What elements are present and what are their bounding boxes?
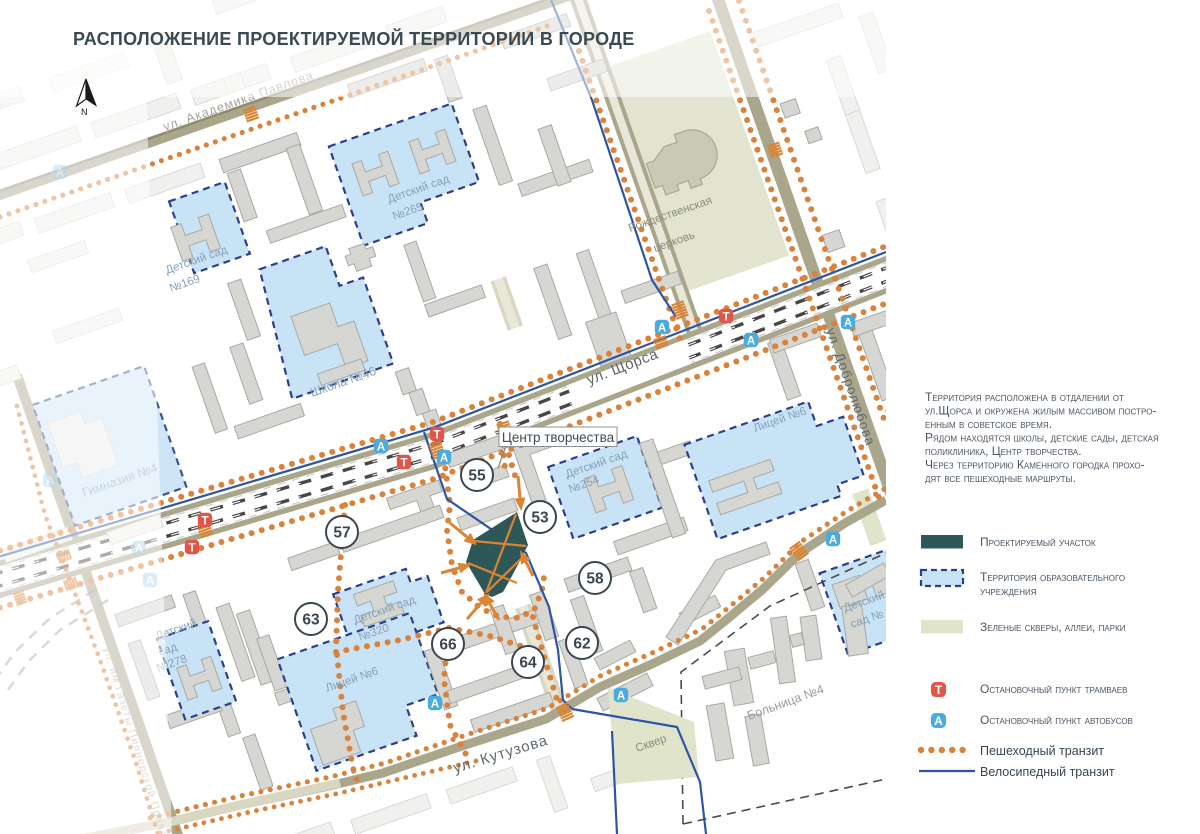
svg-text:енным в советское время.: енным в советское время. (925, 417, 1052, 431)
svg-text:дят все пешеходные маршруты.: дят все пешеходные маршруты. (925, 471, 1076, 485)
svg-text:A: A (440, 452, 448, 464)
svg-text:A: A (431, 698, 439, 710)
svg-text:A: A (829, 534, 837, 546)
svg-text:A: A (658, 322, 666, 334)
svg-text:58: 58 (586, 571, 604, 588)
svg-text:Больница №4: Больница №4 (745, 682, 825, 723)
svg-text:Проектируемый участок: Проектируемый участок (980, 535, 1096, 549)
svg-text:A: A (377, 441, 385, 453)
svg-text:T: T (201, 515, 208, 527)
svg-text:Остановочный пункт трамваев: Остановочный пункт трамваев (980, 682, 1127, 696)
svg-text:T: T (722, 311, 729, 323)
svg-text:Через территорию Каменного гор: Через территорию Каменного городка прохо… (925, 458, 1145, 472)
svg-text:T: T (188, 542, 195, 554)
svg-text:Территория расположена в отдал: Территория расположена в отдалении от (925, 390, 1124, 404)
svg-text:A: A (844, 317, 852, 329)
svg-text:T: T (935, 683, 943, 697)
svg-text:63: 63 (302, 612, 320, 629)
svg-text:62: 62 (573, 636, 590, 653)
svg-text:A: A (934, 714, 943, 728)
svg-text:ул.Щорса и окружена жилым масс: ул.Щорса и окружена жилым массивом постр… (925, 404, 1156, 418)
svg-text:A: A (747, 335, 755, 347)
svg-text:Центр творчества: Центр творчества (502, 430, 615, 445)
svg-text:№169: №169 (168, 273, 202, 295)
svg-text:53: 53 (531, 510, 549, 527)
svg-text:Велосипедный транзит: Велосипедный транзит (980, 765, 1115, 779)
svg-text:66: 66 (439, 637, 457, 654)
svg-text:поликлиника, Центр творчества.: поликлиника, Центр творчества. (925, 444, 1082, 458)
svg-text:Пешеходный транзит: Пешеходный транзит (980, 744, 1104, 758)
svg-text:учреждения: учреждения (980, 584, 1037, 598)
svg-text:A: A (617, 690, 625, 702)
svg-text:Территория образовательного: Территория образовательного (980, 570, 1125, 584)
svg-text:57: 57 (333, 525, 350, 542)
svg-text:РАСПОЛОЖЕНИЕ ПРОЕКТИРУЕМОЙ ТЕР: РАСПОЛОЖЕНИЕ ПРОЕКТИРУЕМОЙ ТЕРРИТОРИИ В … (73, 28, 635, 49)
svg-text:64: 64 (519, 655, 537, 672)
svg-text:T: T (400, 457, 407, 469)
svg-text:N: N (81, 107, 88, 117)
svg-text:T: T (433, 429, 440, 441)
svg-text:Рядом находятся школы, детские: Рядом находятся школы, детские сады, дет… (925, 431, 1159, 445)
svg-text:55: 55 (468, 468, 486, 485)
svg-text:Зеленые скверы, аллеи, парки: Зеленые скверы, аллеи, парки (980, 620, 1126, 634)
svg-text:Остановочный пункт автобусов: Остановочный пункт автобусов (980, 713, 1133, 727)
